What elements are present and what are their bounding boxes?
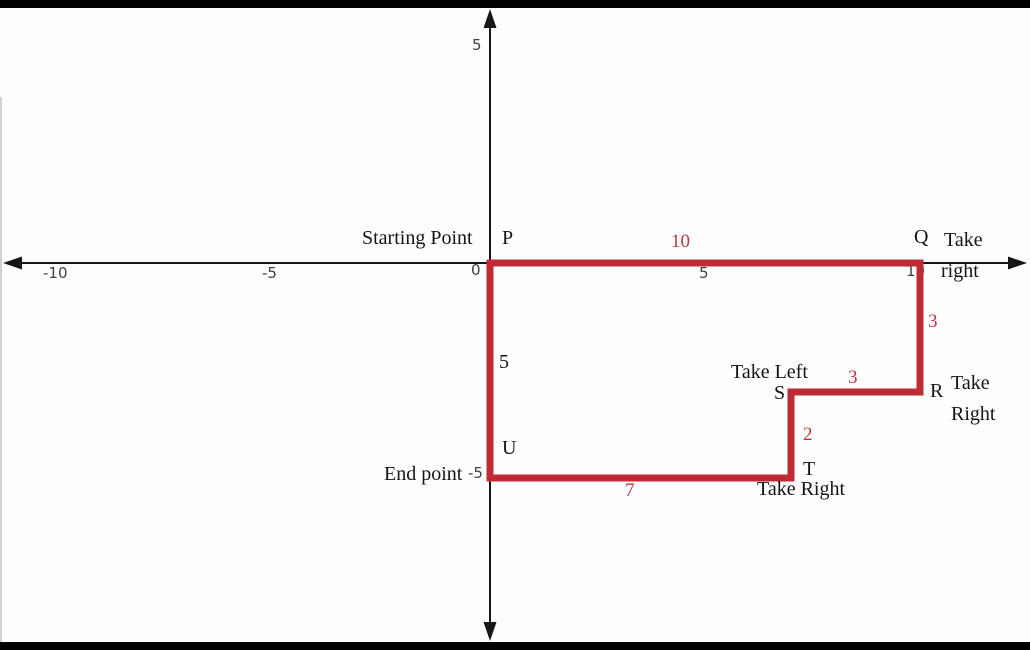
coordinate-plane-diagram: -10 -5 0 5 10 5 -5 Starting Point P Q Ta… xyxy=(0,0,1030,650)
y-axis-bottom-arrow-icon xyxy=(484,622,497,641)
y-axis-top-arrow-icon xyxy=(484,9,497,28)
x-axis-right-arrow-icon xyxy=(1008,257,1027,270)
x-axis-left-arrow-icon xyxy=(3,257,22,270)
route-path xyxy=(490,263,920,478)
axes-and-route-plot xyxy=(0,0,1030,650)
